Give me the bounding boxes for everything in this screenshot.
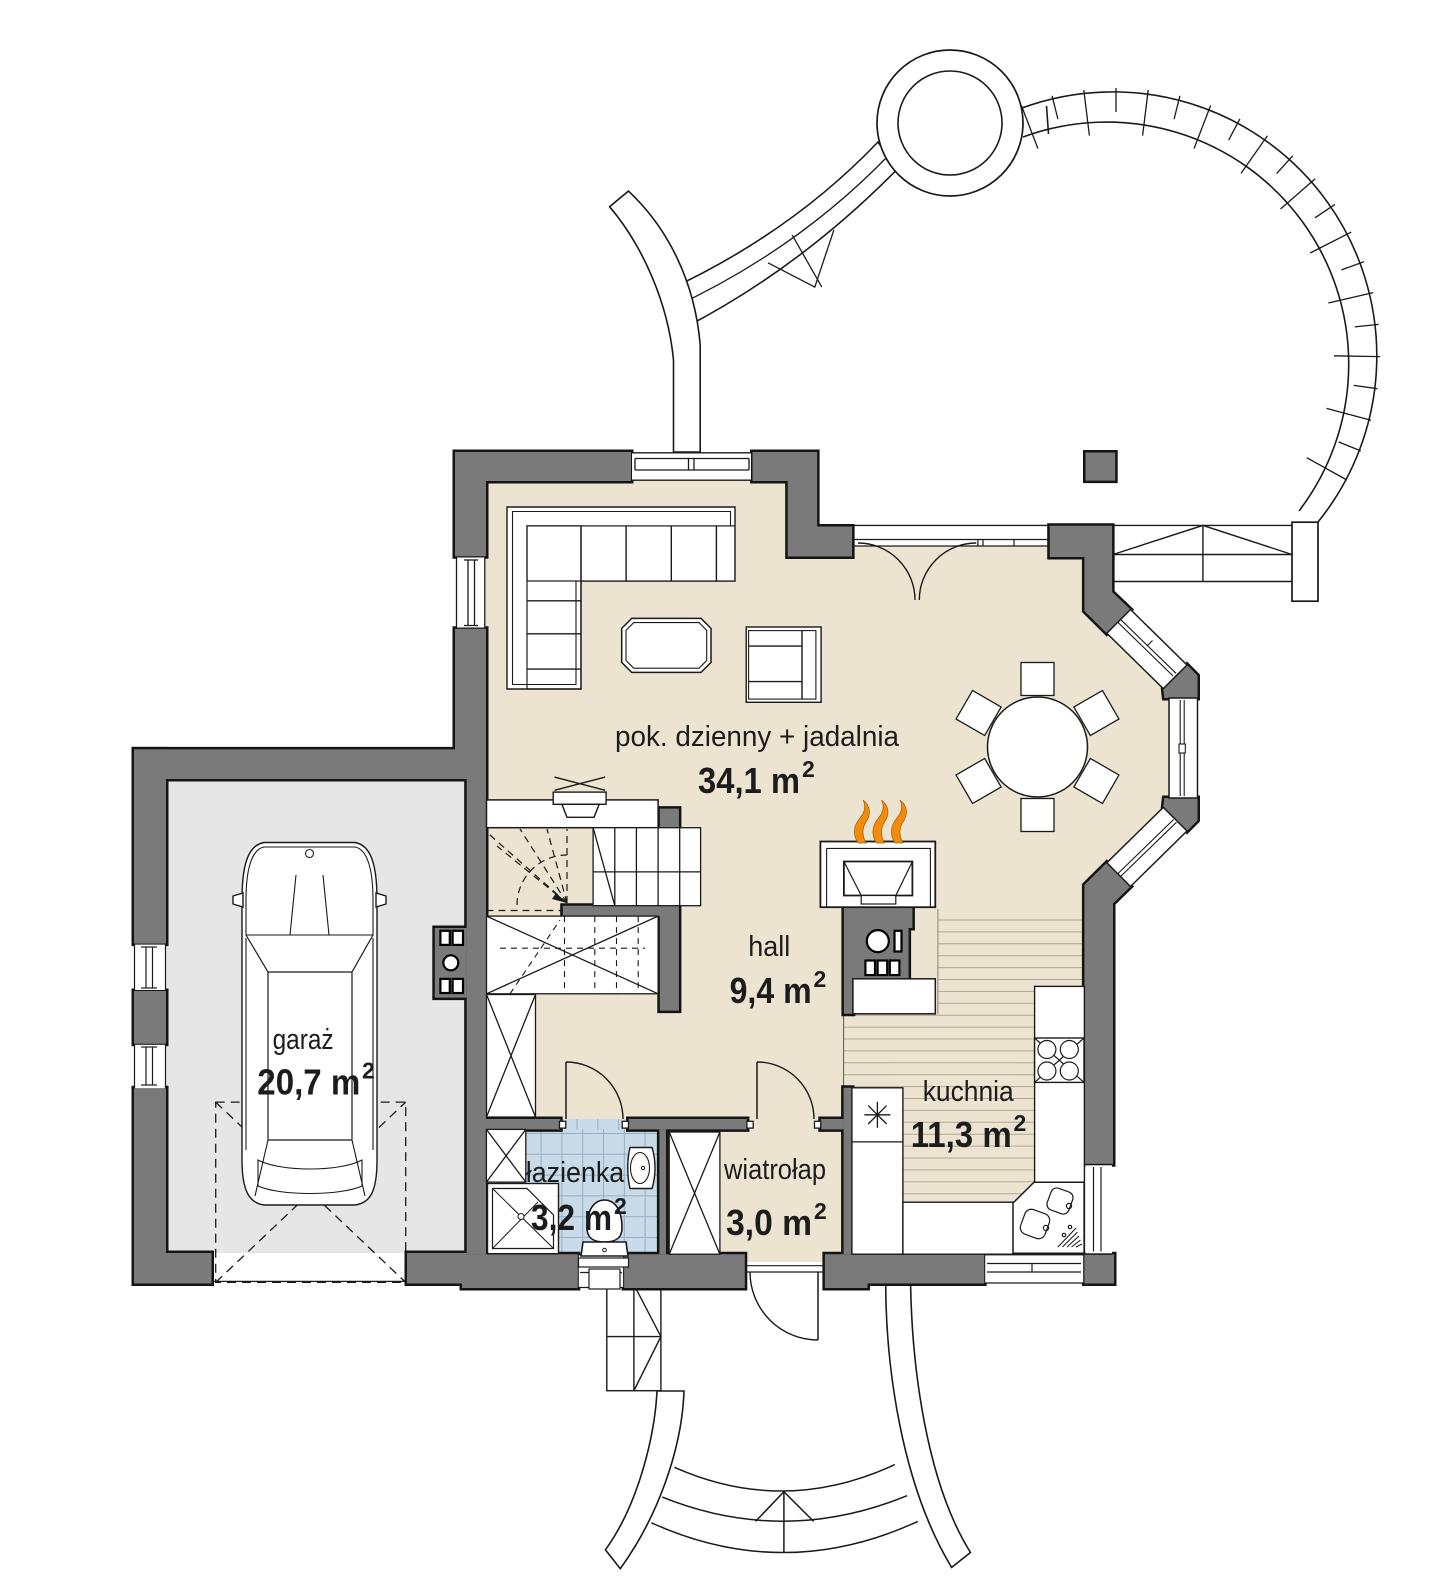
svg-text:3,2 m: 3,2 m xyxy=(531,1197,612,1238)
svg-text:20,7 m: 20,7 m xyxy=(257,1062,360,1103)
svg-text:łazienka: łazienka xyxy=(526,1157,625,1189)
svg-text:pok. dzienny + jadalnia: pok. dzienny + jadalnia xyxy=(615,721,899,753)
svg-text:2: 2 xyxy=(362,1058,375,1084)
svg-text:2: 2 xyxy=(814,966,827,992)
svg-text:3,0 m: 3,0 m xyxy=(726,1202,812,1243)
svg-text:hall: hall xyxy=(748,931,790,963)
svg-text:11,3 m: 11,3 m xyxy=(911,1114,1012,1155)
svg-text:2: 2 xyxy=(1014,1110,1027,1136)
svg-text:34,1 m: 34,1 m xyxy=(698,760,800,801)
svg-text:2: 2 xyxy=(614,1193,627,1219)
svg-text:9,4 m: 9,4 m xyxy=(730,970,812,1011)
svg-text:garaż: garaż xyxy=(273,1024,334,1056)
svg-text:kuchnia: kuchnia xyxy=(923,1076,1014,1108)
svg-text:wiatrołap: wiatrołap xyxy=(723,1154,826,1186)
svg-text:2: 2 xyxy=(802,756,815,782)
svg-text:2: 2 xyxy=(814,1198,827,1224)
